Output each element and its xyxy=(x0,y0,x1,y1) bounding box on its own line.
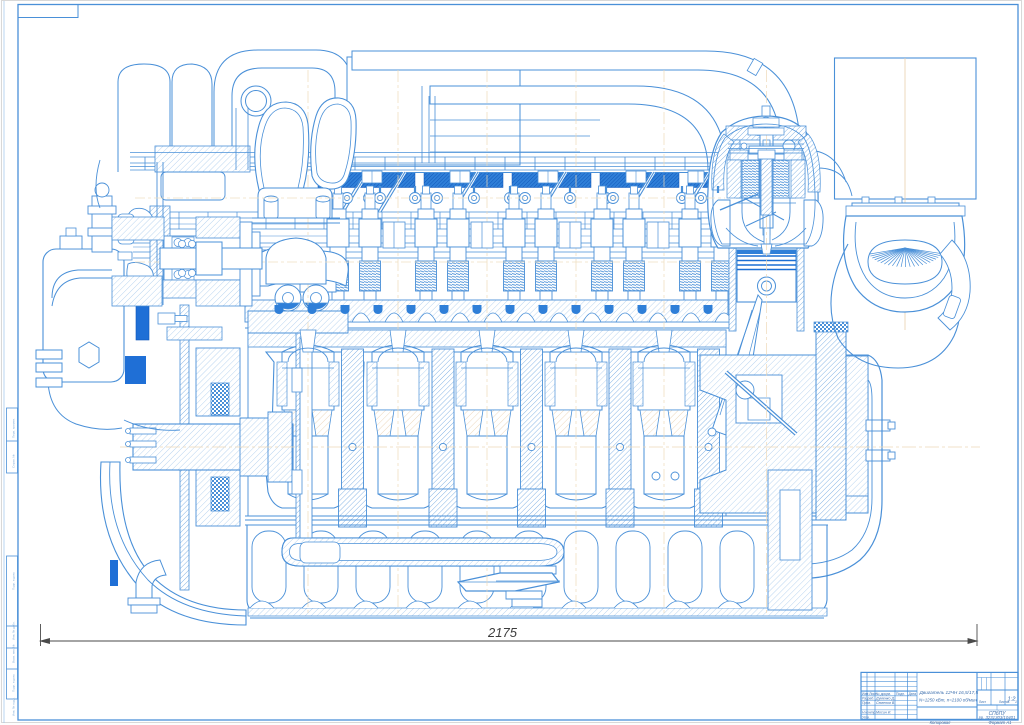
svg-text:Дата: Дата xyxy=(909,692,917,696)
svg-text:2175: 2175 xyxy=(487,625,518,640)
svg-text:Изм Лист: Изм Лист xyxy=(862,692,877,696)
svg-text:Семенов В.: Семенов В. xyxy=(876,701,895,705)
svg-text:Подп.: Подп. xyxy=(896,692,905,696)
svg-text:№ докум.: № докум. xyxy=(876,692,891,696)
svg-text:Двигатель 12ЧН 16,5/17,5: Двигатель 12ЧН 16,5/17,5 xyxy=(919,690,979,695)
svg-text:Копировал: Копировал xyxy=(930,720,951,725)
svg-text:1: 1 xyxy=(1015,700,1017,704)
svg-text:Мосин И.: Мосин И. xyxy=(876,711,891,715)
svg-text:Листов: Листов xyxy=(999,700,1010,704)
svg-text:Лист: Лист xyxy=(979,700,986,704)
svg-text:Инв. № подл.: Инв. № подл. xyxy=(12,697,16,716)
svg-text:Справ. №: Справ. № xyxy=(12,454,16,468)
svg-text:Утв.: Утв. xyxy=(862,715,870,719)
svg-text:Взам. инв. №: Взам. инв. № xyxy=(12,644,16,663)
svg-text:Подп. и дата: Подп. и дата xyxy=(12,674,16,692)
svg-text:Инв. № дубл.: Инв. № дубл. xyxy=(12,621,16,640)
svg-text:Перв. примен.: Перв. примен. xyxy=(12,418,16,438)
svg-text:Подп. и дата: Подп. и дата xyxy=(12,572,16,590)
svg-text:Н.контр.: Н.контр. xyxy=(862,711,876,715)
svg-text:Пров.: Пров. xyxy=(862,701,871,705)
svg-text:Формат А1: Формат А1 xyxy=(989,720,1012,725)
svg-text:Разраб.: Разраб. xyxy=(862,697,874,701)
svg-text:N=1250 кВт, n=2100 об/мин: N=1250 кВт, n=2100 об/мин xyxy=(919,698,977,703)
svg-text:Думенко Д.: Думенко Д. xyxy=(875,697,895,701)
